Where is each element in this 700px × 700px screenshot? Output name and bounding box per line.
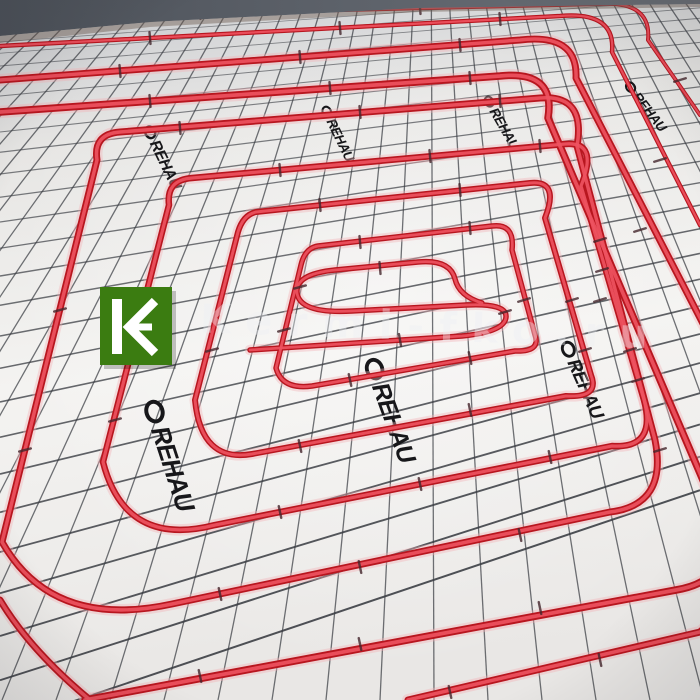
kermi-logo (100, 287, 176, 369)
photo-underfloor-heating: REHAUREHAUREHAUREHAUREHAUREHAUREHAU Kerm… (0, 0, 700, 700)
floor-scene: REHAUREHAUREHAUREHAUREHAUREHAUREHAU Kerm… (0, 0, 700, 700)
